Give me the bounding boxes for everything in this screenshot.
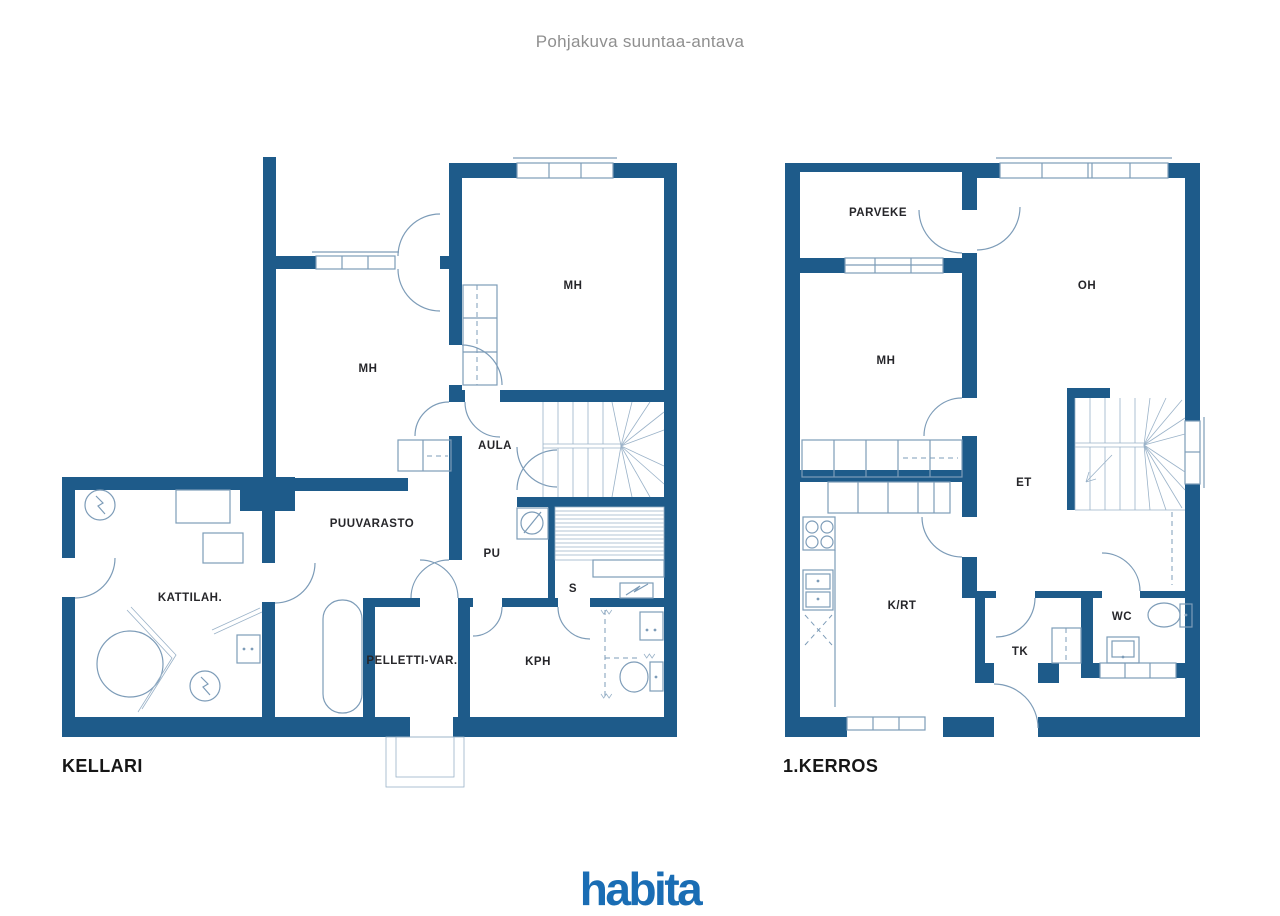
kerros-stairs	[1075, 398, 1185, 585]
room-label-oh: OH	[1078, 280, 1096, 292]
room-label-pu: PU	[484, 548, 501, 560]
caption-1kerros: 1.KERROS	[783, 756, 878, 776]
plan-1kerros: PARVEKE MH OH ET K/RT TK WC 1.KERROS	[783, 156, 1207, 776]
room-label-tk: TK	[1012, 646, 1029, 658]
window-midleft-mh	[312, 250, 399, 269]
window-stair-right	[1185, 417, 1207, 488]
floorplan-canvas: MH MH AULA PUUVARASTO PU S KATTILAH. PEL…	[0, 0, 1280, 905]
kerros-walls	[785, 163, 1200, 737]
kellari-doors	[75, 214, 590, 639]
room-label-mh: MH	[877, 355, 896, 367]
room-label-mh-upper: MH	[564, 280, 583, 292]
plan-kellari: MH MH AULA PUUVARASTO PU S KATTILAH. PEL…	[62, 156, 677, 787]
room-label-puuvarasto: PUUVARASTO	[330, 518, 414, 530]
window-krt-bottom	[847, 717, 925, 730]
room-label-parveke: PARVEKE	[849, 207, 907, 219]
window-wc-bottom	[1100, 663, 1176, 678]
caption-kellari: KELLARI	[62, 756, 143, 776]
room-label-kattilah: KATTILAH.	[158, 592, 222, 604]
kellari-stairs	[543, 402, 664, 497]
window-top-mh	[513, 156, 617, 178]
room-label-mh-lower: MH	[359, 363, 378, 375]
habita-logo: habita	[0, 862, 1280, 916]
room-label-pelletti: PELLETTI-VAR.	[366, 655, 457, 667]
window-parveke	[845, 258, 943, 273]
window-oh-top	[996, 156, 1172, 178]
room-label-krt: K/RT	[888, 600, 917, 612]
room-label-kph: KPH	[525, 656, 551, 668]
room-label-aula: AULA	[478, 440, 512, 452]
room-label-s: S	[569, 583, 577, 595]
kellari-walls	[62, 157, 677, 737]
room-label-wc: WC	[1112, 611, 1132, 623]
room-label-et: ET	[1016, 477, 1032, 489]
